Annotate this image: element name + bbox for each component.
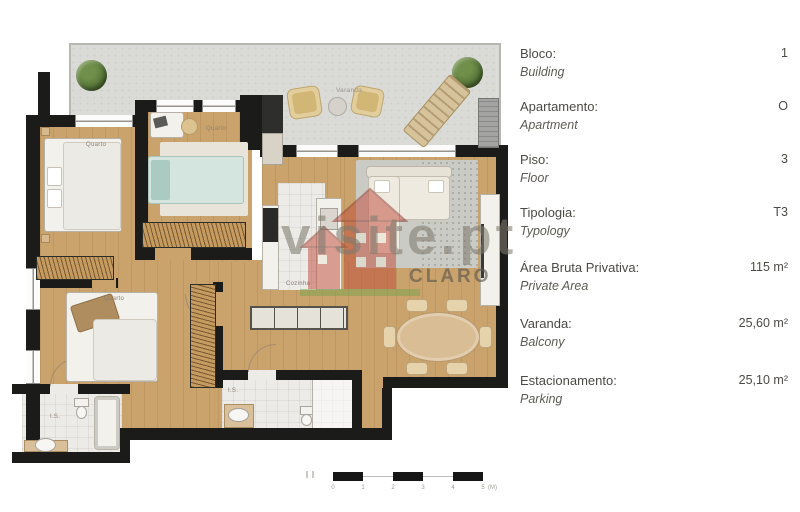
laptop-icon (153, 116, 168, 129)
bedroom2-window2 (202, 100, 236, 112)
info-row-building: Bloco: 1 Building (520, 45, 790, 79)
info-label-en: Floor (520, 171, 790, 185)
balcony-edge-top (69, 43, 501, 45)
cooktop (263, 208, 278, 242)
desk-chair (181, 118, 198, 135)
shower (312, 380, 352, 428)
pillow (151, 160, 170, 200)
bedroom2-label: Quarto (206, 126, 226, 132)
toilet (301, 414, 312, 426)
bed (148, 156, 244, 204)
dining-chair (446, 362, 468, 375)
cushion (291, 90, 317, 114)
dining-chair (446, 299, 468, 312)
balcony-edge-right (499, 43, 501, 145)
duvet (93, 319, 157, 381)
watermark-brand: CLARO (409, 266, 492, 288)
nightstand (41, 127, 50, 136)
info-label-en: Typology (520, 224, 790, 238)
info-value: T3 (773, 205, 788, 219)
info-label-pt: Piso: (520, 152, 549, 167)
wardrobe (190, 284, 216, 388)
bathroom1-label: I.S. (50, 414, 60, 420)
bedroom2-door-opening (155, 248, 191, 260)
scale-tick-label: 0 (331, 485, 334, 491)
dining-chair (406, 362, 428, 375)
desk (150, 112, 184, 138)
info-label-en: Apartment (520, 118, 790, 132)
info-row-apartment: Apartamento: O Apartment (520, 98, 790, 132)
info-row-balcony: Varanda: 25,60 m² Balcony (520, 315, 790, 349)
balcony-armchair (286, 85, 323, 121)
bedroom1-window (75, 115, 133, 127)
info-label-pt: Varanda: (520, 316, 572, 331)
floorplan-page: Varanda Quarto Quarto Cozinha (0, 0, 800, 512)
scale-tick-label: 5 (481, 485, 484, 491)
info-value: 3 (781, 152, 788, 166)
floor-plan: Varanda Quarto Quarto Cozinha (0, 0, 512, 512)
balcony-side-table (328, 97, 347, 116)
scale-bar: 0 1 2 3 4 5 (M) (300, 468, 510, 494)
scale-unit: (M) (488, 485, 497, 491)
bedroom3-window2 (26, 350, 40, 384)
kitchen-cabinet (262, 133, 283, 165)
bedroom2-window (156, 100, 194, 112)
wall-segment (215, 370, 362, 380)
info-row-parking: Estacionamento: 25,10 m² Parking (520, 372, 790, 406)
info-value: 115 m² (750, 260, 788, 274)
plant-icon (76, 60, 107, 91)
wardrobe (142, 222, 246, 248)
info-label-pt: Tipologia: (520, 205, 576, 220)
wall-segment (383, 377, 508, 388)
living-sliding-door (358, 145, 456, 157)
wall-segment (12, 452, 130, 463)
info-value: 25,10 m² (739, 373, 788, 387)
info-value: O (778, 99, 788, 113)
nightstand (41, 234, 50, 243)
info-row-typology: Tipologia: T3 Typology (520, 204, 790, 238)
wardrobe (36, 256, 114, 280)
balcony-edge-left (69, 43, 71, 115)
bedroom3-label: Quarto (104, 296, 124, 302)
info-value: 1 (781, 46, 788, 60)
balcony-floor-left (70, 100, 140, 115)
dining-chair (479, 326, 492, 348)
kitchen-tall-unit (262, 95, 283, 133)
ac-unit (478, 98, 499, 148)
info-label-pt: Bloco: (520, 46, 556, 61)
info-value: 25,60 m² (739, 316, 788, 330)
bedroom1-label: Quarto (86, 142, 106, 148)
scale-tick-label: 1 (361, 485, 364, 491)
scale-segment (453, 472, 483, 481)
wall-segment (352, 370, 362, 428)
bed (66, 292, 158, 382)
info-label-en: Parking (520, 392, 790, 406)
balcony-label: Varanda (336, 88, 362, 95)
scale-tick-label: 3 (421, 485, 424, 491)
watermark-text: visite.pt (281, 206, 517, 267)
wall-segment (130, 428, 392, 440)
bathtub (94, 396, 120, 450)
scale-tick-label: 2 (391, 485, 394, 491)
info-row-private-area: Área Bruta Privativa: 115 m² Private Are… (520, 259, 790, 293)
scale-tick-label: 4 (451, 485, 454, 491)
scale-mark (312, 471, 314, 478)
info-label-en: Private Area (520, 279, 790, 293)
toilet (76, 406, 87, 419)
scale-mark (306, 471, 308, 478)
sink (35, 438, 56, 452)
dining-chair (383, 326, 396, 348)
info-label-en: Balcony (520, 335, 790, 349)
info-row-floor: Piso: 3 Floor (520, 151, 790, 185)
info-label-pt: Apartamento: (520, 99, 598, 114)
dining-chair (406, 299, 428, 312)
info-label-en: Building (520, 65, 790, 79)
sideboard (250, 306, 348, 330)
scale-segment (393, 472, 423, 481)
scale-segment (333, 472, 363, 481)
dining-table (396, 312, 480, 362)
sink (228, 408, 249, 422)
kitchen-balcony-door (296, 145, 338, 157)
pillow (47, 167, 62, 186)
bathroom2-label: I.S. (228, 388, 238, 394)
duvet (63, 142, 121, 230)
bed (44, 138, 122, 232)
info-label-pt: Estacionamento: (520, 373, 617, 388)
info-label-pt: Área Bruta Privativa: (520, 260, 639, 275)
pillow (47, 189, 62, 208)
